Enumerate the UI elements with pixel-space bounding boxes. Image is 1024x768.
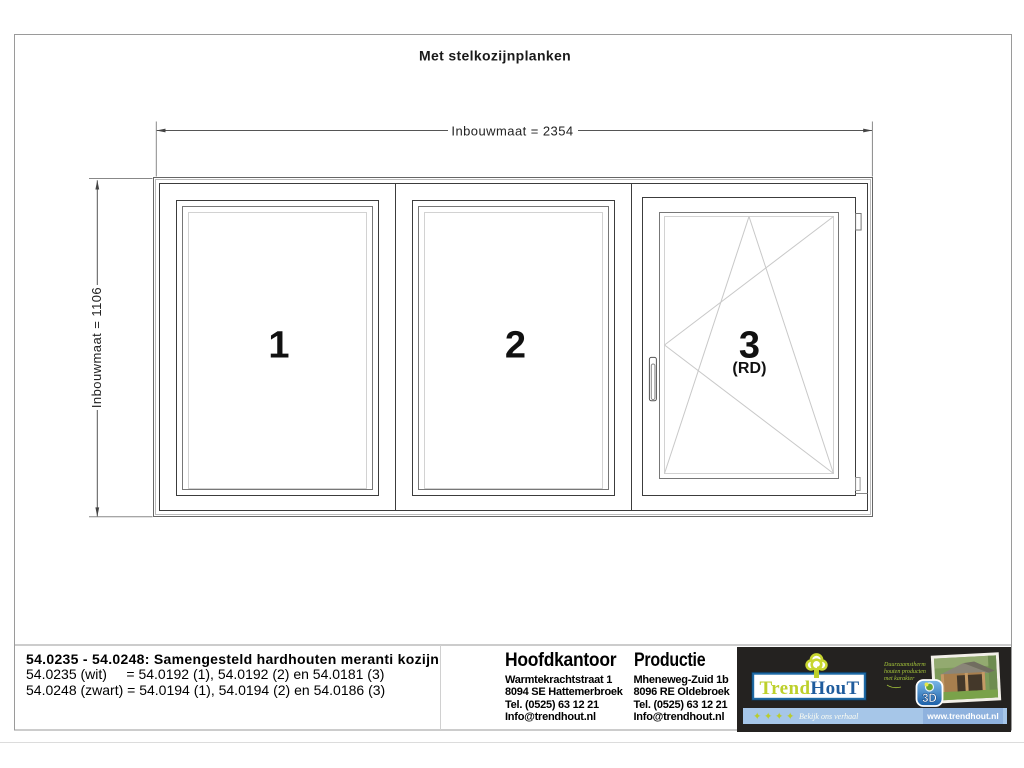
svg-text:✦: ✦ <box>786 712 794 723</box>
svg-text:TrendHouT: TrendHouT <box>760 678 860 699</box>
svg-text:Inbouwmaat = 2354: Inbouwmaat = 2354 <box>451 123 573 138</box>
svg-text:met karakter: met karakter <box>884 676 915 682</box>
svg-text:3D: 3D <box>922 693 937 705</box>
svg-text:✦: ✦ <box>764 712 772 723</box>
svg-text:houten producten: houten producten <box>884 669 926 675</box>
svg-text:(RD): (RD) <box>732 360 766 377</box>
svg-text:Met stelkozijnplanken: Met stelkozijnplanken <box>419 48 571 64</box>
svg-text:1: 1 <box>268 325 289 367</box>
svg-text:Inbouwmaat = 1106: Inbouwmaat = 1106 <box>89 287 104 408</box>
svg-text:2: 2 <box>505 325 526 367</box>
svg-text:✦: ✦ <box>775 712 783 723</box>
svg-text:Duurzaamstherm: Duurzaamstherm <box>883 662 926 668</box>
svg-text:✦: ✦ <box>753 712 761 723</box>
svg-text:www.trendhout.nl: www.trendhout.nl <box>926 711 998 721</box>
svg-text:Bekijk ons verhaal: Bekijk ons verhaal <box>799 712 859 721</box>
